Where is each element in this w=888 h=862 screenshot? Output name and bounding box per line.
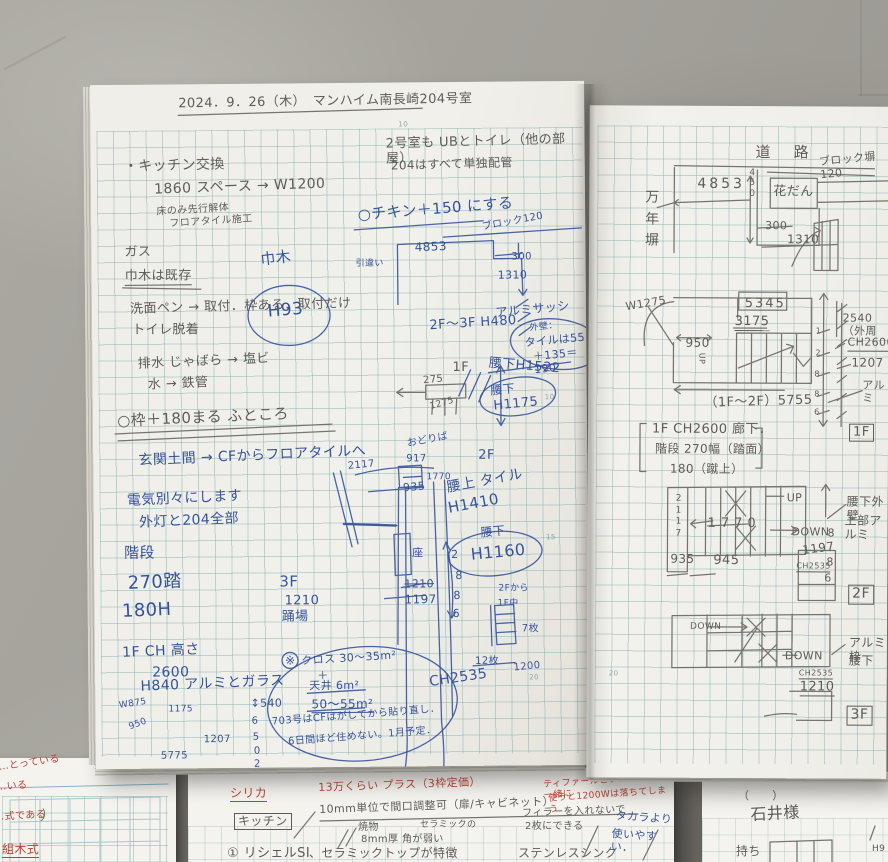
tag-3f: 3F — [847, 706, 873, 726]
dim-1275: 1275 — [429, 396, 455, 413]
dim-1175: 1175 — [168, 704, 193, 715]
lbl-koshishita: 腰下 — [849, 654, 874, 668]
koshi-1160b: H1160 — [470, 541, 526, 565]
t3: 8 — [814, 369, 820, 378]
t2: 2 — [815, 348, 821, 357]
dim-935r: 935 — [670, 552, 694, 566]
pm-richelle: ① リシェルSI — [227, 846, 310, 861]
dim-1197l: 1197 — [404, 592, 436, 606]
note-piping: 204はすべて単独配管 — [391, 155, 513, 172]
kaidan-270: 270踏 — [127, 571, 182, 595]
lbl-down3f-a: DOWN — [690, 622, 721, 633]
dim-540: ↕540 — [250, 698, 282, 711]
dim-4853l: 4853 — [414, 239, 447, 255]
pm-silica: シリカ — [230, 786, 267, 802]
note-3f: 3F — [279, 573, 298, 591]
lbl-hikichigai: 引違い — [356, 259, 384, 270]
pl-kumiki: 組木式 — [2, 842, 39, 858]
notebook-left-page: 2024．9．26（木） マンハイム南長崎204号室・キッチン交換2号室も UB… — [90, 81, 590, 769]
right-page-annotations: 道 路ブロック塀120万 年 塀48534 5 0花だん3001310W1275… — [590, 105, 888, 107]
dim-2117: 2117 — [347, 458, 375, 472]
koshi-1160a: 腰下 — [480, 523, 506, 539]
margin-20r: 20 — [609, 669, 619, 677]
lbl-joubu: 上部アルミ — [844, 514, 887, 543]
dim-275: 275 — [423, 373, 444, 387]
dim-1210r: 1210 — [800, 679, 835, 697]
tile-joint-1 — [4, 36, 67, 71]
dim-950l: 950 — [128, 716, 149, 732]
cloth-ceiling: 天井 6m² — [309, 680, 359, 693]
paper-right-grid — [702, 818, 888, 862]
note-waku180: ○枠＋180まる ふところ — [117, 405, 289, 430]
lbl-road: 道 路 — [755, 144, 812, 162]
lbl-za: 座 — [412, 547, 424, 560]
margin-20: 20 — [529, 673, 539, 681]
lbl-ch2535l: CH2535 — [428, 666, 488, 691]
pm-13man: 13万くらい プラス（3枠定価） — [318, 776, 481, 795]
pm-takara1: タカラより — [615, 810, 673, 827]
v2886-6: 6 — [453, 608, 461, 621]
note-2f3f-h480: 2F〜3F H480 — [429, 313, 517, 334]
margin-15: 15 — [546, 533, 556, 541]
lbl-2f: 2F — [478, 448, 495, 463]
lbl-ch2535b: CH2535 — [799, 668, 833, 680]
dim-w1275: W1275 — [625, 295, 667, 315]
left-page-annotations: 2024．9．26（木） マンハイム南長崎204号室・キッチン交換2号室も UB… — [90, 81, 584, 85]
dim-1210s: 1210 — [404, 578, 434, 591]
note-1210: 1210 — [284, 593, 319, 609]
note-haisui: 排水 じゃばら → 塩ビ — [137, 351, 270, 372]
dim-3175: 3175 — [735, 314, 770, 332]
dim-5775: 5775 — [161, 750, 188, 762]
note-kaidan: 階段 — [124, 545, 155, 563]
num-6b: 6 — [824, 572, 831, 585]
notebook-right-page: 道 路ブロック塀120万 年 塀48534 5 0花だん3001310W1275… — [586, 105, 888, 779]
lbl-down8: DOWN — [791, 526, 829, 539]
dim-1770r: 1770 — [708, 516, 761, 532]
tag-1f: 1F — [849, 424, 874, 442]
digit-0: 0 — [254, 746, 261, 758]
note-space: 1860 スペース → W1200 — [154, 176, 326, 198]
lbl-7mai: 7枚 — [522, 623, 539, 635]
margin-10t: 10 — [398, 120, 408, 128]
lbl-down3f-b: DOWN — [785, 650, 823, 663]
lbl-mannenbei: 万 年 塀 — [645, 188, 660, 253]
pm-filler2: 2枚にできる — [525, 821, 584, 833]
lbl-up: UP — [787, 492, 803, 505]
tile-joint-3 — [858, 94, 888, 96]
pm-ceramic-s: セラミックの — [420, 820, 476, 831]
note-1fch: 1F CH 高さ — [122, 642, 200, 662]
pr-ishii: 石井様 — [750, 803, 800, 824]
lbl-odoriba2: おどりば — [406, 431, 449, 450]
lbl-2fkara: 2Fから — [498, 583, 529, 594]
pl-line2: …いる — [0, 780, 28, 794]
mark-kome: ※ — [285, 653, 296, 667]
pm-sink: ステンレスシンク — [518, 846, 617, 860]
note-kitchen: ・キッチン交換 — [124, 156, 225, 175]
pl-line1: …とっている — [0, 753, 61, 773]
photo-notebook-scene: …とっている…いる…式である）組木式 シリカキッチン① リシェルSI13万くらい… — [0, 0, 888, 862]
pm-takara2: 使いやすい． — [610, 828, 674, 858]
pm-ceramictop: 、セラミックトップが特徴 — [309, 846, 458, 860]
lbl-ch2600r: CH2600 — [847, 337, 888, 352]
note-habaki: 巾木は既存 — [125, 268, 192, 286]
lbl-1f: 1F — [452, 360, 469, 375]
dim-950r: 950 — [685, 336, 709, 350]
pm-yakimono: 焼物 — [358, 822, 379, 834]
t5: 6 — [814, 407, 820, 416]
dim-4853r: 4853 — [697, 176, 745, 193]
lbl-alumi-r: アルミ — [862, 380, 888, 406]
dim-1200: 1200 — [513, 660, 541, 674]
dim-945r: 945 — [713, 553, 739, 568]
blob-gaiheki: 外壁： — [529, 321, 558, 334]
tile-joint-2 — [860, 0, 862, 96]
dim-5345: 5345 — [745, 296, 786, 312]
paper-bottom-middle: シリカキッチン① リシェルSI13万くらい プラス（3枠定価）10mm単位で間口… — [188, 768, 674, 862]
koshi-1175b: H1175 — [493, 394, 539, 414]
note-denki: 電気別々にします — [127, 488, 243, 510]
lbl-blockwall: ブロック塀120 — [818, 149, 888, 182]
note-gas: ガス — [124, 245, 151, 261]
dim-450: 4 5 0 — [749, 168, 755, 199]
lbl-up-small: UP — [697, 353, 706, 365]
v2886-8a: 8 — [455, 570, 463, 583]
dim-1207r: 1207 — [851, 356, 883, 370]
pm-10mm: 10mm単位で間口調整可（扉/キャビネット） — [319, 796, 554, 817]
digit-5: 5 — [253, 732, 260, 744]
pr-paren: （ ） — [738, 790, 784, 803]
koshi-1175a: 腰下 — [490, 381, 516, 397]
dim-1310l: 1310 — [498, 269, 528, 282]
pm-8mm: 8mm厚 角が弱い — [361, 834, 444, 846]
date-heading: 2024．9．26（木） マンハイム南長崎204号室 — [178, 91, 472, 111]
digit-6: 6 — [252, 716, 259, 728]
note-genkan: 玄関土間 → CFからフロアタイルへ — [138, 443, 366, 469]
memo-keage: 180（蹴上） — [670, 462, 744, 477]
dim-1207l: 1207 — [204, 734, 231, 746]
tag-2f: 2F — [848, 585, 874, 605]
v2886-2: 2 — [451, 549, 459, 562]
t1: 1 — [816, 326, 822, 335]
dim-w875: W875 — [118, 697, 147, 712]
dim-917: 917 — [406, 453, 426, 465]
note-6days: 6日間ほど住めない。1月予定． — [288, 725, 437, 748]
dim-300r: 300 — [765, 220, 787, 233]
kaidan-180h: 180H — [122, 599, 172, 622]
memo-kaidan: 階段 270幅（踏面） — [655, 442, 770, 457]
num-8b: 8 — [826, 556, 833, 569]
v2886-8b: 8 — [453, 590, 461, 603]
dim-1310r: 1310 — [787, 232, 819, 246]
digit-2: 2 — [254, 759, 261, 771]
pr-h9: H9 — [872, 844, 885, 855]
lbl-1fnaka: 1F中 — [498, 598, 519, 609]
dim-2117r: 2 1 1 7 — [675, 494, 681, 541]
margin-10: 10 — [545, 393, 555, 401]
pr-mochi: 持ち — [736, 844, 761, 858]
habaki-label: 巾木 — [259, 248, 292, 269]
note-toilet: トイレ脱着 — [132, 322, 199, 338]
note-mizu: 水 → 鉄管 — [148, 375, 209, 393]
pm-kitchen: キッチン — [234, 813, 292, 830]
cloth-area: クロス 30〜35m² — [301, 650, 397, 669]
pl-paren: ） — [39, 808, 56, 827]
dim-300l: 300 — [511, 251, 531, 263]
paper-gap-right — [672, 768, 702, 862]
lbl-kadan: 花だん — [773, 184, 813, 200]
note-senmen: 洗面ペン → 取付．枠ある．取付だけ — [130, 296, 352, 317]
note-odoriba: 踊場 — [282, 609, 309, 625]
paper-bottom-right: （ ）石井様持ちH9 — [702, 778, 888, 862]
dim-935l: 935 — [403, 480, 426, 495]
dim-5755: （1F〜2F）5755 — [704, 393, 812, 412]
t4: 8 — [814, 389, 820, 398]
memo-1fch: 1F CH2600 廊下． — [652, 422, 772, 438]
note-gaito: 外灯と204全部 — [139, 510, 240, 531]
